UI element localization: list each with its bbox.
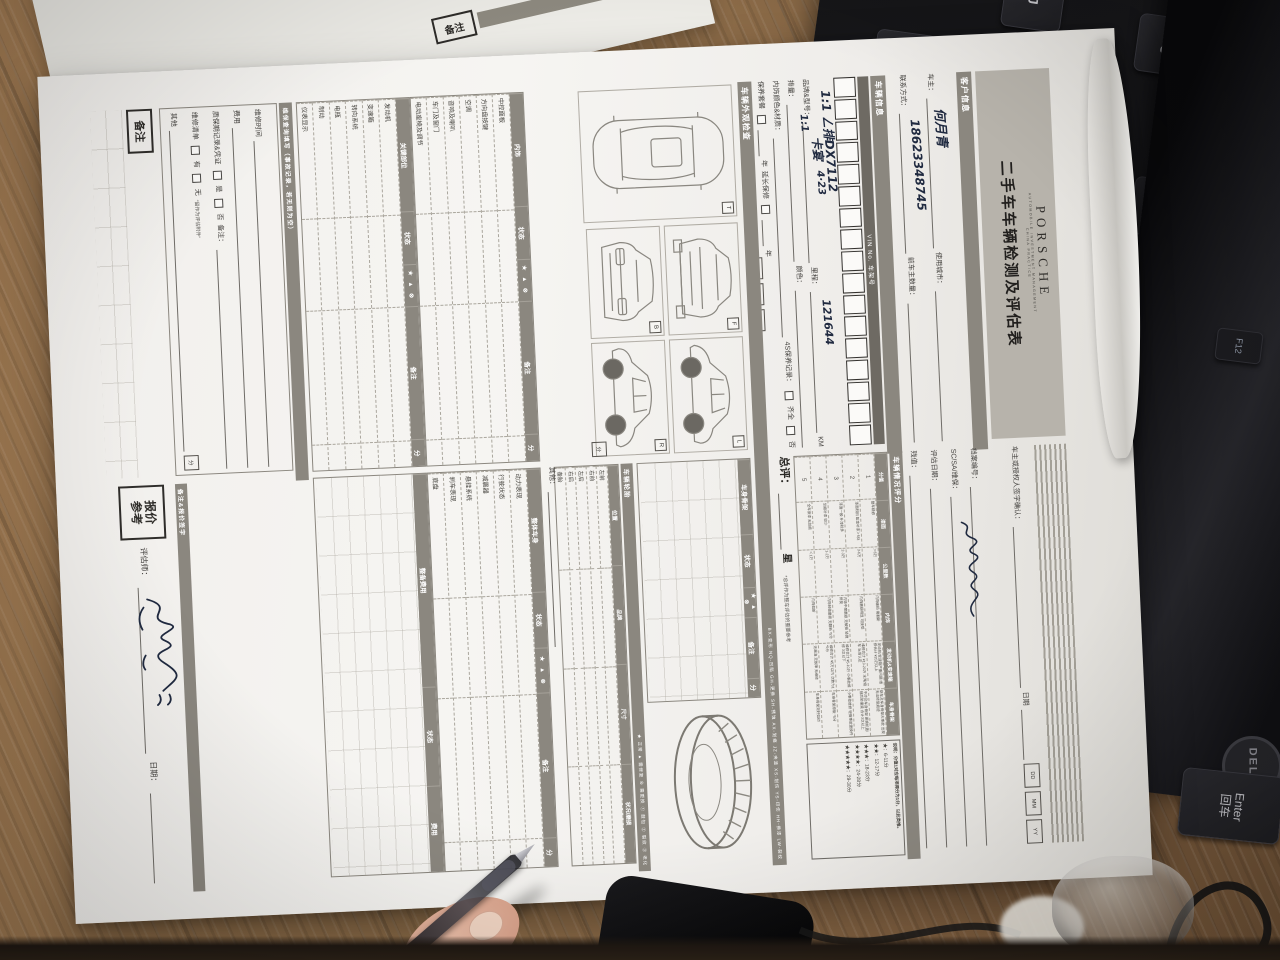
frame-band: 车身骨架 — [737, 459, 752, 534]
frame-state-label: 状态 — [743, 554, 754, 567]
score-cell-frame: 不涉及车身骨架 更换机盖/前后防撞梁 合计3次以上 — [853, 688, 870, 736]
desk-scene: 备注 M , K < J I O L * 8 ( 9 F7 F8 F9 F10 … — [0, 0, 1280, 960]
view-tag-front: F — [727, 317, 740, 330]
vin-cell — [835, 120, 858, 141]
score-cell-value: 5 — [794, 456, 811, 502]
score-cell-value: 4 — [810, 456, 827, 502]
scsa-handwriting-scribble — [953, 518, 984, 629]
service-no-label: 否 — [787, 441, 797, 448]
exterior-band-title: 车辆外观检查 — [739, 87, 752, 141]
phone-handwriting: 18623348745 — [908, 119, 929, 212]
interior-score-cell — [476, 436, 493, 463]
interior-state-header: 状态 — [515, 206, 530, 259]
extended-warranty-unit: 年 — [763, 250, 773, 257]
enter-label-cn: 回车 — [1215, 793, 1232, 818]
state-icons: ★ ▲ ⊗ — [520, 265, 528, 295]
score-col-header: 漆面 — [876, 500, 890, 547]
vin-cell — [841, 251, 864, 272]
vin-cell — [848, 403, 871, 424]
car-front-view-drawing — [667, 223, 742, 332]
remark-grid — [90, 110, 139, 479]
maintenance-package-label: 保养套餐 — [755, 81, 766, 109]
interior-rows: 中控面板 方向盘按键 — [411, 93, 527, 465]
score-cell-paint: 整车精修 — [860, 499, 877, 547]
body-score-cell — [477, 840, 494, 869]
scsa-label: SC/SA/维保： — [948, 448, 960, 492]
mileage-handwriting: 121644 — [819, 299, 836, 346]
privacy-date-line — [1021, 709, 1033, 759]
key-part-score-cell — [312, 444, 329, 471]
residual-label: 残值： — [908, 450, 919, 471]
car-top-view-drawing — [581, 85, 737, 220]
archive-no-label: 档案编号： — [968, 448, 980, 483]
vin-cell — [842, 272, 865, 293]
score-cell-value: 3 — [826, 455, 843, 501]
score-cell-engine: 无漏油 无故障 无维修 — [803, 643, 820, 691]
score-table-body: 1 整车精修 ＞6万 内饰破损 需翻新 发动机/变速箱严重问题 维修合计 ¥20… — [794, 453, 887, 738]
privacy-mm-box: MM — [1025, 791, 1042, 816]
exterior-legend: BX-变形 NQ-凹陷 GH-更换 SH-锈蚀 AX-划痕 JZ-夹渣 XS-划… — [766, 628, 783, 861]
state-icons: ★ ▲ ⊗ — [538, 656, 546, 686]
score-cell-engine: 发动机/变速箱严重问题 维修合计 ¥20万以上 — [867, 640, 884, 688]
owner-sign-label: 车主或授权人签字确认： — [1009, 446, 1022, 523]
form-header: PORSCHE AUTOMOBILE INVESTMENT MANAGEMENT… — [975, 68, 1066, 439]
appraiser-label: 评估师： — [138, 547, 150, 579]
city-label: 使用城市： — [933, 252, 945, 287]
eval-date-label: 评估日期： — [928, 449, 940, 484]
score-cell-interior: 内饰磨损明显 可接受 — [849, 594, 866, 642]
interior-score-header: 分 — [525, 434, 539, 461]
score-cell-interior: 内饰中度磨损 无破损 轻微修复 — [833, 595, 850, 643]
vin-cell — [840, 229, 863, 250]
sheet2-gray-band — [477, 0, 627, 28]
frame-state-icons: ★ ▲ ⊗ — [743, 587, 756, 618]
view-tag-left: L — [732, 435, 745, 448]
score-cell-km: 2-3万 — [831, 547, 848, 595]
phone-label: 联系方式： — [897, 74, 909, 109]
footer-row: 报价 参考 评估师： 日期： — [113, 484, 187, 884]
body-state-icons: ★ ▲ ⊗ — [535, 647, 550, 693]
score-cell-km: 3-6万 — [846, 547, 863, 595]
owner-label: 车主： — [925, 73, 936, 94]
interior-state-icons: ★ ▲ ⊗ — [517, 258, 532, 300]
quote-box-line2: 参考 — [128, 501, 143, 526]
body-state-header: 状态 — [532, 591, 548, 648]
star-legend-items: ★：6-11分★★：12-17分★★★：18-23分★★★★：24-28分★★★… — [844, 743, 894, 855]
recon-grid — [316, 474, 431, 876]
frame-note-header: 备注 — [745, 617, 760, 678]
score-cell-frame: 烧车及车身骨架大事故 出现无法修复痕迹 — [869, 688, 886, 736]
mileage-label: 里程： — [809, 267, 820, 288]
score-cell-frame: 车身骨架完好如初 — [805, 691, 822, 739]
repair-list-none-label: 无 — [193, 189, 203, 196]
vin-cell — [844, 316, 867, 337]
body-rows: 动力表现 行驶状态 — [428, 469, 545, 871]
score-col-header: 发动机&变速箱 — [883, 641, 897, 688]
interior-score-cell — [459, 437, 476, 464]
interior-score-cell — [492, 436, 509, 463]
tire-other-label: 其他： — [547, 467, 558, 488]
key-part-score-cell — [395, 440, 412, 467]
key-parts-table: 关键部位 状态 ★ ▲ ⊗ 备注 分 发动机 — [296, 97, 427, 472]
vin-cell — [839, 207, 862, 228]
car-right-view-drawing — [594, 341, 669, 454]
repair-list-have-label: 有 — [191, 161, 201, 168]
sheet2-remark-box: 备注 — [431, 10, 478, 45]
prev-owner-line — [907, 303, 923, 443]
score-table: 分值漆面公里数内饰发动机&变速箱车身骨架 1 整车精修 ＞6万 内饰破损 需翻新… — [793, 452, 900, 740]
repair-list-attach-note: “留作为评估附件” — [193, 200, 202, 239]
score-cell-interior: 内饰轻微磨损 无翻新 *5分 — [817, 595, 834, 643]
body-score-cell — [461, 841, 478, 870]
form-content: PORSCHE AUTOMOBILE INVESTMENT MANAGEMENT… — [47, 37, 1144, 914]
privacy-date-label: 日期 — [1020, 691, 1031, 705]
car-right-view: R — [591, 340, 670, 457]
key-f12: F12 — [1214, 327, 1264, 364]
score-col-header: 公里数 — [879, 547, 893, 594]
score-cell-frame: 小事故维修 轻微事故更换件 — [837, 689, 854, 737]
score-col-header: 分值 — [874, 453, 888, 500]
interior-check-table: 内饰 状态 ★ ▲ ⊗ 备注 分 中控面板 — [410, 92, 541, 467]
state-icons: ★ ▲ ⊗ — [742, 588, 757, 618]
exterior-score-box: 分 — [591, 441, 607, 457]
score-col-header: 内饰 — [881, 594, 895, 641]
frame-score-header: 分 — [747, 677, 760, 697]
body-check-table: 整体车身 状态 ★ ▲ ⊗ 备注 分 动力表现 — [427, 467, 559, 872]
service-query-table: 维修时间 费用 质保期记录&凭证 是 否 备注： 维修清单 有 无 “留作为评估… — [159, 103, 294, 476]
state-icons: ★ ▲ ⊗ — [406, 270, 414, 300]
key-part-score-cell — [345, 442, 362, 469]
score-cell-paint: 漆面一般 补漆较多 — [828, 500, 845, 548]
star-legend-box: 说明：分值1对应每项得分为1分，以此类推。 ★：6-11分★★：12-17分★★… — [806, 739, 905, 859]
extended-warranty-line — [762, 220, 773, 246]
warranty-record-label: 质保期记录&凭证 — [210, 111, 222, 165]
prev-owner-label: 前车主数量： — [905, 257, 917, 299]
car-rear-view: B — [586, 226, 665, 339]
quote-reference-box: 报价 参考 — [118, 485, 166, 541]
car-diagrams: T F B — [575, 82, 750, 457]
vin-cell — [833, 77, 856, 98]
quote-box-line1: 报价 — [142, 500, 157, 525]
warranty-yes-checkbox — [213, 170, 222, 179]
other-record-line — [169, 131, 194, 452]
remark-area: 备注 — [92, 109, 169, 479]
total-label: 总评： — [776, 456, 793, 490]
key-parts-state-header: 状态 — [401, 211, 416, 264]
score-cell-km: ＜1万 — [799, 549, 816, 597]
score-cell-engine: 维修合计 ¥10-20万 水淹/烧车 当场认定 — [851, 641, 868, 689]
service-complete-label: 齐全 — [785, 406, 796, 420]
owner-handwriting: 何月青 — [931, 107, 953, 147]
car-left-view-drawing — [672, 337, 747, 450]
score-cell-km: ＞6万 — [862, 546, 879, 594]
total-line — [778, 493, 791, 549]
vin-cell — [846, 359, 869, 380]
vin-cell — [843, 294, 866, 315]
key-enter: Enter 回车 — [1177, 767, 1280, 845]
score-cell-interior: 内饰如新 — [801, 596, 818, 644]
repair-list-have-checkbox — [191, 146, 200, 155]
frame-section: 车身骨架 状态 ★ ▲ ⊗ 备注 分 — [636, 458, 761, 703]
key-parts-rows: 发动机 变速箱 — [297, 99, 413, 471]
score-cell-paint: 漆面较旧 鈑金补漆＞5处 — [844, 499, 861, 547]
score-cell-value: 1 — [858, 453, 875, 499]
vin-cell — [849, 425, 872, 446]
vin-cell — [845, 338, 868, 359]
maintenance-package-unit: 年 — [759, 160, 769, 167]
privacy-section: 车主或授权人签字确认： 日期 DD MM YY — [992, 444, 1084, 845]
key-part-score-cell — [378, 441, 395, 468]
score-cell-value: 2 — [842, 454, 859, 500]
mileage-unit: KM — [816, 436, 823, 447]
key-j: J — [1000, 0, 1067, 33]
total-unit: 星 — [781, 553, 796, 564]
repair-time-label: 维修时间 — [252, 109, 263, 137]
service-record-label: 4S保养记录： — [782, 341, 794, 385]
service-complete-checkbox — [784, 391, 793, 400]
extended-warranty-label: 延长保修 — [759, 171, 770, 199]
body-score-header: 分 — [543, 837, 557, 866]
recon-cost-header: 费用 — [427, 786, 444, 872]
car-rear-view-drawing — [589, 227, 664, 336]
vin-cell — [847, 381, 870, 402]
displacement-label: 排量： — [785, 80, 796, 101]
warranty-note-label: 备注： — [215, 224, 226, 245]
warranty-no-checkbox — [214, 198, 223, 207]
key-part-score-cell — [362, 441, 379, 468]
frame-grid — [640, 460, 749, 702]
privacy-dd-box: DD — [1023, 763, 1040, 788]
privacy-yy-box: YY — [1026, 819, 1043, 844]
car-front-view: F — [664, 222, 743, 335]
desk-edge — [0, 936, 1280, 960]
extended-warranty-checkbox — [761, 205, 770, 214]
body-score-cell — [444, 842, 461, 871]
body-score-cell — [527, 838, 544, 867]
repair-cost-label: 费用 — [231, 110, 242, 124]
repair-list-label: 维修清单 — [189, 112, 200, 140]
key-part-score-cell — [329, 443, 346, 470]
vin-cell — [834, 99, 857, 120]
score-cell-paint: 全车原漆 无划痕 — [796, 502, 813, 550]
maintenance-package-checkbox — [757, 115, 766, 124]
score-cell-frame: 车身骨架原版 *5分 — [821, 690, 838, 738]
service-no-checkbox — [786, 426, 795, 435]
total-note: *总评作为整车评估的重要参考 — [782, 575, 792, 642]
repair-list-none-checkbox — [192, 174, 201, 183]
score-col-header: 车身骨架 — [885, 688, 899, 735]
archive-section: 档案编号： SC/SA/维保： 评估日期： 残值： — [908, 447, 1006, 848]
recon-section: 整备费用 状态 费用 — [313, 473, 445, 878]
score-cell-interior: 内饰破损 需翻新 — [865, 593, 882, 641]
appraiser-signature — [137, 590, 189, 722]
maintenance-package-line — [757, 130, 768, 156]
frame-state-header: 状态 — [741, 534, 755, 587]
color-label: 颜色： — [794, 265, 805, 286]
owner-sign-line — [1013, 527, 1030, 688]
interior-score-cell — [509, 435, 526, 462]
displacement-handwriting: 1:1 — [798, 114, 810, 133]
key-parts-score-header: 分 — [411, 439, 425, 466]
tire-legend: ★ 正常 ▲ 需修复 ⊗ 需更换 ① 鼓包 ② 裂纹 ③ 老化 — [636, 734, 648, 866]
warranty-yes-label: 是 — [213, 185, 223, 192]
interior-score-cell — [443, 438, 460, 465]
brand-model-handwriting: 卡宴 — [808, 136, 827, 161]
service-score-box: 分 — [184, 455, 200, 471]
interior-score-cell — [426, 438, 443, 465]
tire-illustration — [660, 704, 767, 860]
remark-box-label: 备注 — [126, 109, 154, 154]
score-cell-paint: 划痕补漆 较少 — [812, 501, 829, 549]
car-top-view: T — [578, 84, 738, 223]
score-cell-engine: 维修合计 ¥5万以内 次数为1 *5分 — [819, 643, 836, 691]
tire-band-title: 车辆轮胎 — [622, 468, 633, 498]
car-left-view: L — [669, 336, 748, 453]
warranty-no-label: 否 — [215, 213, 225, 220]
inspection-form-paper: PORSCHE AUTOMOBILE INVESTMENT MANAGEMENT… — [37, 28, 1152, 924]
footer-date-label: 日期： — [148, 761, 160, 785]
key-parts-state-icons: ★ ▲ ⊗ — [403, 264, 418, 306]
view-tag-top: T — [722, 201, 735, 214]
interior-material-label: 内饰颜色&材质： — [770, 80, 782, 134]
score-cell-km: 1-2万 — [815, 548, 832, 596]
score-cell-engine: 维修合计 ¥5-10万 小事故维修 3次以下 — [835, 642, 852, 690]
footer-date-line — [150, 793, 164, 883]
other-record-label: 其他 — [168, 113, 179, 127]
view-tag-rear: B — [649, 321, 662, 334]
